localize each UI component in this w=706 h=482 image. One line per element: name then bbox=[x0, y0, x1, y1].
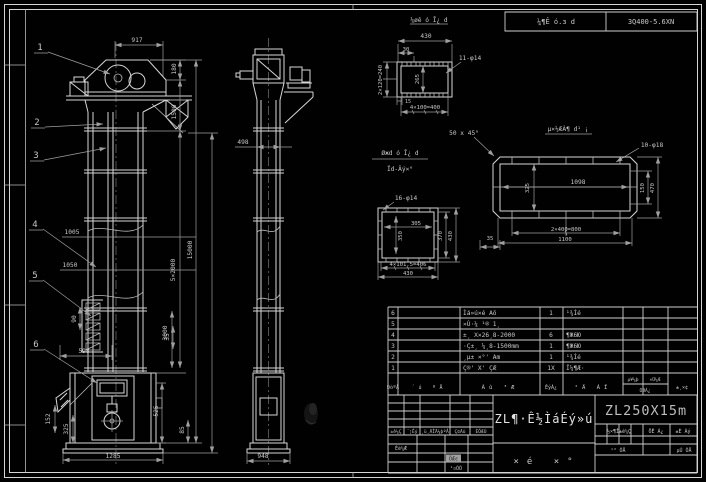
dim-15000: 15000 bbox=[187, 240, 194, 259]
drawing-title: ZL¶·Ê½ÌáÉý»ú bbox=[495, 411, 594, 426]
dim-430-right: 430 bbox=[448, 231, 454, 241]
side-view: 498 948 bbox=[235, 38, 313, 465]
rev-header: ±ê¼Ç bbox=[390, 428, 401, 435]
flange-bolt-holes bbox=[402, 62, 448, 97]
head-pulley bbox=[105, 65, 131, 91]
header-weight: ÖØÁ¿ bbox=[639, 387, 650, 394]
dim-325: 325 bbox=[63, 423, 70, 434]
dim-305: 305 bbox=[411, 221, 421, 227]
rev-header: ´¦Êý bbox=[406, 427, 417, 435]
row-seq: 2 bbox=[391, 354, 395, 361]
duct-detail: µ×½ÆÀ¶ d¹ ¡ 50 x 45° 10-φ18 1098 325 150… bbox=[449, 124, 663, 246]
header-doc-label: ¼¶Ê ó.з d bbox=[537, 17, 575, 26]
header-code-label: 3Q400-5.6XN bbox=[628, 18, 674, 26]
title-block: ±ê¼Ç ´¦Êý ¸ü¸ÄÎÄ¼þºÅ Ç©Ãû ÈÕÆÚ Éè¼Æ ÖÆͼ … bbox=[388, 395, 697, 473]
base-flange-detail: Øжd ó Ī¿ d Ïd-Âý×° 16-φ14 305 350 370 43… bbox=[372, 148, 500, 280]
dim-1098: 1098 bbox=[571, 179, 586, 186]
part-label-1: 1 bbox=[37, 43, 42, 53]
smudge-artifact bbox=[304, 403, 318, 425]
part-label-2: 2 bbox=[34, 118, 39, 128]
highlight-label: ÖÆͼ bbox=[449, 456, 458, 463]
header-seq: ÐòºÅ bbox=[387, 384, 399, 391]
chamfer-note: 50 x 45° bbox=[449, 129, 479, 137]
row-seq: 6 bbox=[391, 310, 395, 317]
dim-470: 470 bbox=[650, 183, 656, 193]
dim-4x101: 4×101.5=406 bbox=[389, 262, 426, 268]
row-material: ¹¾Íé bbox=[566, 308, 581, 317]
dim-265: 265 bbox=[415, 74, 421, 84]
stage-label: ½×¶Î±ê¼Ç bbox=[607, 428, 631, 435]
dim-1500: 1500 bbox=[171, 104, 178, 119]
duct-holes-label: 10-φ18 bbox=[641, 142, 664, 149]
dim-430-top: 430 bbox=[420, 33, 431, 40]
part-label-3: 3 bbox=[33, 151, 38, 161]
row-name: Ç®' X' ÇÆ bbox=[463, 365, 497, 372]
dim-4x100: 4×100=400 bbox=[410, 105, 440, 111]
part-label-4: 4 bbox=[32, 220, 37, 230]
flange-detail: ¼øê ó Ī¿ d 430 30 2×120=240 265 15 4×100… bbox=[378, 15, 481, 116]
row-name: Ìá»ú×é Aö bbox=[463, 308, 497, 317]
dim-525: 525 bbox=[153, 405, 160, 416]
sheets-total-label: ¹² ÕÅ bbox=[610, 447, 625, 454]
dim-152: 152 bbox=[45, 413, 52, 424]
rev-header: ÈÕÆÚ bbox=[475, 427, 486, 435]
dim-430-bottom: 430 bbox=[403, 271, 413, 277]
dim-35: 35 bbox=[164, 333, 171, 341]
row-material: ¶Ж6Ю bbox=[566, 343, 581, 350]
row-qty: 1 bbox=[549, 343, 553, 350]
base-flange-bolt-holes bbox=[378, 208, 438, 262]
base-flange-holes-label: 16-φ14 bbox=[395, 195, 418, 202]
dim-2x400: 2×400=800 bbox=[551, 227, 581, 233]
duct-title: µ×½ÆÀ¶ d¹ ¡ bbox=[548, 124, 589, 133]
header-bar: ¼¶Ê ó.з d 3Q400-5.6XN bbox=[505, 12, 697, 31]
dim-370: 370 bbox=[438, 231, 444, 241]
part-label-5: 5 bbox=[32, 271, 37, 281]
row-qty: 6 bbox=[549, 332, 553, 339]
header-material: ²Ä ÁÏ bbox=[575, 384, 612, 391]
dim-150: 150 bbox=[640, 183, 646, 193]
dim-350: 350 bbox=[398, 231, 404, 241]
header-name: Ãû ³Æ bbox=[482, 384, 519, 391]
side-bracket bbox=[284, 92, 313, 123]
dim-85: 85 bbox=[179, 426, 186, 434]
drawing-frame bbox=[4, 4, 702, 478]
row-seq: 3 bbox=[391, 343, 395, 350]
process-label: ¹¤ÒÕ bbox=[450, 465, 462, 472]
row-qty: 1 bbox=[549, 354, 553, 361]
row-name: ·Ç±¸ ¼¸8-1500mm bbox=[463, 342, 519, 350]
row-seq: 1 bbox=[391, 365, 395, 372]
dim-1050: 1050 bbox=[63, 262, 78, 269]
sheet-no-label: µÚ ÕÅ bbox=[676, 447, 691, 454]
header-qty: ÊýÁ¿ bbox=[545, 383, 557, 391]
dim-90: 90 bbox=[71, 315, 78, 323]
row-qty: 1 bbox=[549, 310, 553, 317]
row-material: ¹¾Íé bbox=[566, 352, 581, 361]
feed-hopper bbox=[56, 388, 70, 412]
dim-325-duct: 325 bbox=[525, 183, 531, 193]
design-label: Éè¼Æ bbox=[395, 444, 407, 452]
header-weight-unit: µ¥¼þ bbox=[627, 377, 638, 383]
drawing-subtitle: ×é ×° bbox=[513, 456, 580, 467]
scale-label: ±È Àý bbox=[675, 427, 690, 435]
row-seq: 5 bbox=[391, 321, 395, 328]
part-label-6: 6 bbox=[33, 340, 38, 350]
rev-header: Ç©Ãû bbox=[454, 428, 465, 435]
row-seq: 4 bbox=[391, 332, 395, 339]
rev-header: ¸ü¸ÄÎÄ¼þºÅ bbox=[421, 428, 449, 435]
base-flange-title-top: Øжd ó Ī¿ d bbox=[381, 148, 419, 157]
dim-1285: 1285 bbox=[106, 453, 121, 460]
flange-holes-label: 11-φ14 bbox=[459, 55, 482, 62]
row-name: »Ù·¼ ¹® 1¸ bbox=[463, 319, 500, 328]
dim-1005: 1005 bbox=[65, 229, 80, 236]
flange-detail-title: ¼øê ó Ī¿ d bbox=[410, 15, 448, 24]
header-code: ´ú ºÅ bbox=[411, 384, 446, 391]
cad-drawing-viewport: ¼¶Ê ó.з d 3Q400-5.6XN 1 2 3 bbox=[0, 0, 706, 482]
front-view-dimensions: 917 180 1500 5×2000 3000 15000 1005 1050… bbox=[45, 37, 218, 464]
model-number: ZL250X15m bbox=[605, 403, 687, 419]
base-flange-title-bottom: Ïd-Âý×° bbox=[387, 164, 413, 173]
frame-centering-marks bbox=[4, 4, 353, 478]
mass-label: ÖÊ Á¿ bbox=[648, 427, 663, 435]
dim-948: 948 bbox=[257, 453, 268, 460]
dim-30: 30 bbox=[403, 47, 410, 53]
dim-35-gap: 35 bbox=[487, 236, 494, 242]
row-qty: 1X bbox=[547, 365, 555, 372]
row-material: Î¼¶Æ· bbox=[566, 363, 585, 372]
parts-table: 6 Ìá»ú×é Aö 1 ¹¾Íé 5 »Ù·¼ ¹® 1¸ 4 ±¸ X×2… bbox=[387, 307, 697, 395]
header-note: ±¸×¢ bbox=[676, 385, 688, 391]
dim-498: 498 bbox=[237, 139, 248, 146]
dim-1100: 1100 bbox=[558, 237, 571, 243]
side-motor bbox=[286, 67, 312, 88]
break-lines bbox=[88, 225, 143, 298]
dim-917: 917 bbox=[131, 37, 142, 44]
row-name: ¸µ± ×°' Am bbox=[463, 353, 501, 361]
header-weight-total: ×Ü¼Æ bbox=[649, 376, 660, 383]
row-name: ±¸ X×26¸8-2000 bbox=[463, 332, 515, 339]
base-plate bbox=[63, 443, 163, 453]
dim-598: 598 bbox=[78, 348, 89, 355]
dim-2x120: 2×120=240 bbox=[378, 65, 384, 95]
row-material: ¶Ж6Ю bbox=[566, 332, 581, 339]
cad-canvas: ¼¶Ê ó.з d 3Q400-5.6XN 1 2 3 bbox=[0, 0, 706, 482]
dim-180: 180 bbox=[171, 63, 178, 74]
